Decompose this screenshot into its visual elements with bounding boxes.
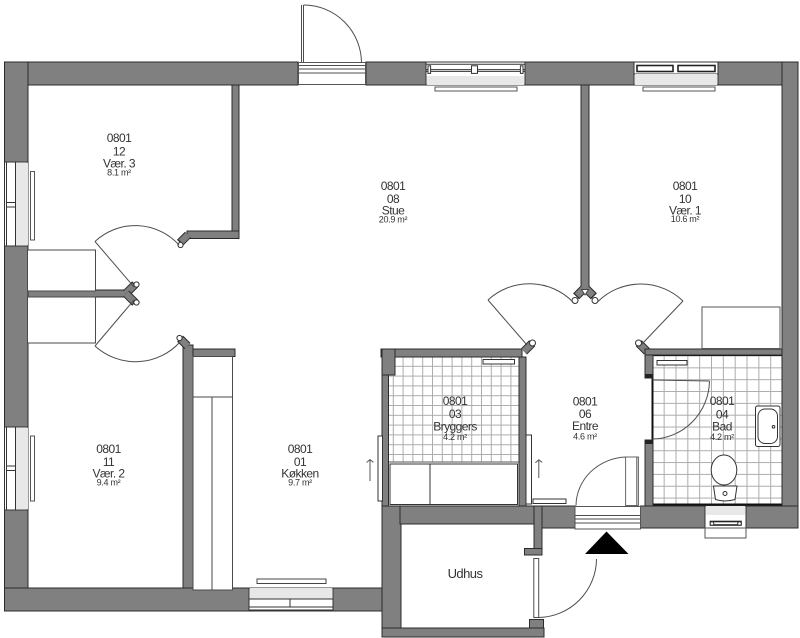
svg-text:9.4 m²: 9.4 m² (97, 478, 121, 488)
svg-text:Udhus: Udhus (448, 566, 484, 581)
svg-text:0801: 0801 (381, 179, 406, 193)
svg-text:10.6 m²: 10.6 m² (671, 214, 700, 224)
svg-text:0801: 0801 (443, 394, 468, 408)
svg-text:0801: 0801 (107, 131, 132, 145)
svg-text:8.1 m²: 8.1 m² (107, 168, 131, 178)
svg-text:0801: 0801 (288, 442, 313, 456)
svg-text:0801: 0801 (710, 394, 735, 408)
svg-text:20.9 m²: 20.9 m² (379, 215, 408, 225)
svg-text:4.6 m²: 4.6 m² (573, 432, 597, 442)
svg-text:0801: 0801 (673, 179, 698, 193)
svg-text:9.7 m²: 9.7 m² (288, 478, 312, 488)
svg-text:4.2 m²: 4.2 m² (443, 432, 467, 442)
svg-text:0801: 0801 (96, 442, 121, 456)
svg-text:4.2 m²: 4.2 m² (710, 432, 734, 442)
